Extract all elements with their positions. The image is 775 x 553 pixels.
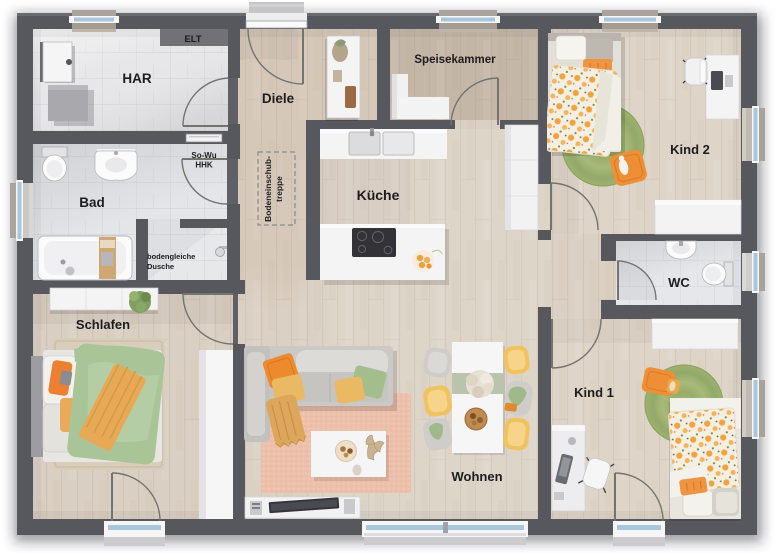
svg-text:treppe: treppe [274, 176, 284, 202]
svg-text:ELT: ELT [184, 34, 201, 45]
svg-text:Bad: Bad [79, 195, 105, 210]
svg-text:HHK: HHK [195, 161, 213, 170]
svg-text:HAR: HAR [122, 71, 151, 86]
svg-text:Bodeneinschub-: Bodeneinschub- [263, 156, 273, 222]
svg-text:bodengleiche: bodengleiche [147, 252, 195, 261]
svg-text:Kind 1: Kind 1 [574, 385, 614, 400]
svg-text:Wohnen: Wohnen [451, 469, 502, 484]
svg-text:Kind 2: Kind 2 [670, 142, 710, 157]
svg-text:So-Wu: So-Wu [191, 151, 216, 160]
svg-text:Diele: Diele [262, 91, 295, 106]
svg-text:Küche: Küche [357, 187, 400, 203]
svg-text:Schlafen: Schlafen [76, 317, 130, 332]
svg-text:WC: WC [668, 275, 690, 290]
svg-text:Speisekammer: Speisekammer [414, 54, 496, 66]
svg-text:Dusche: Dusche [147, 262, 174, 271]
